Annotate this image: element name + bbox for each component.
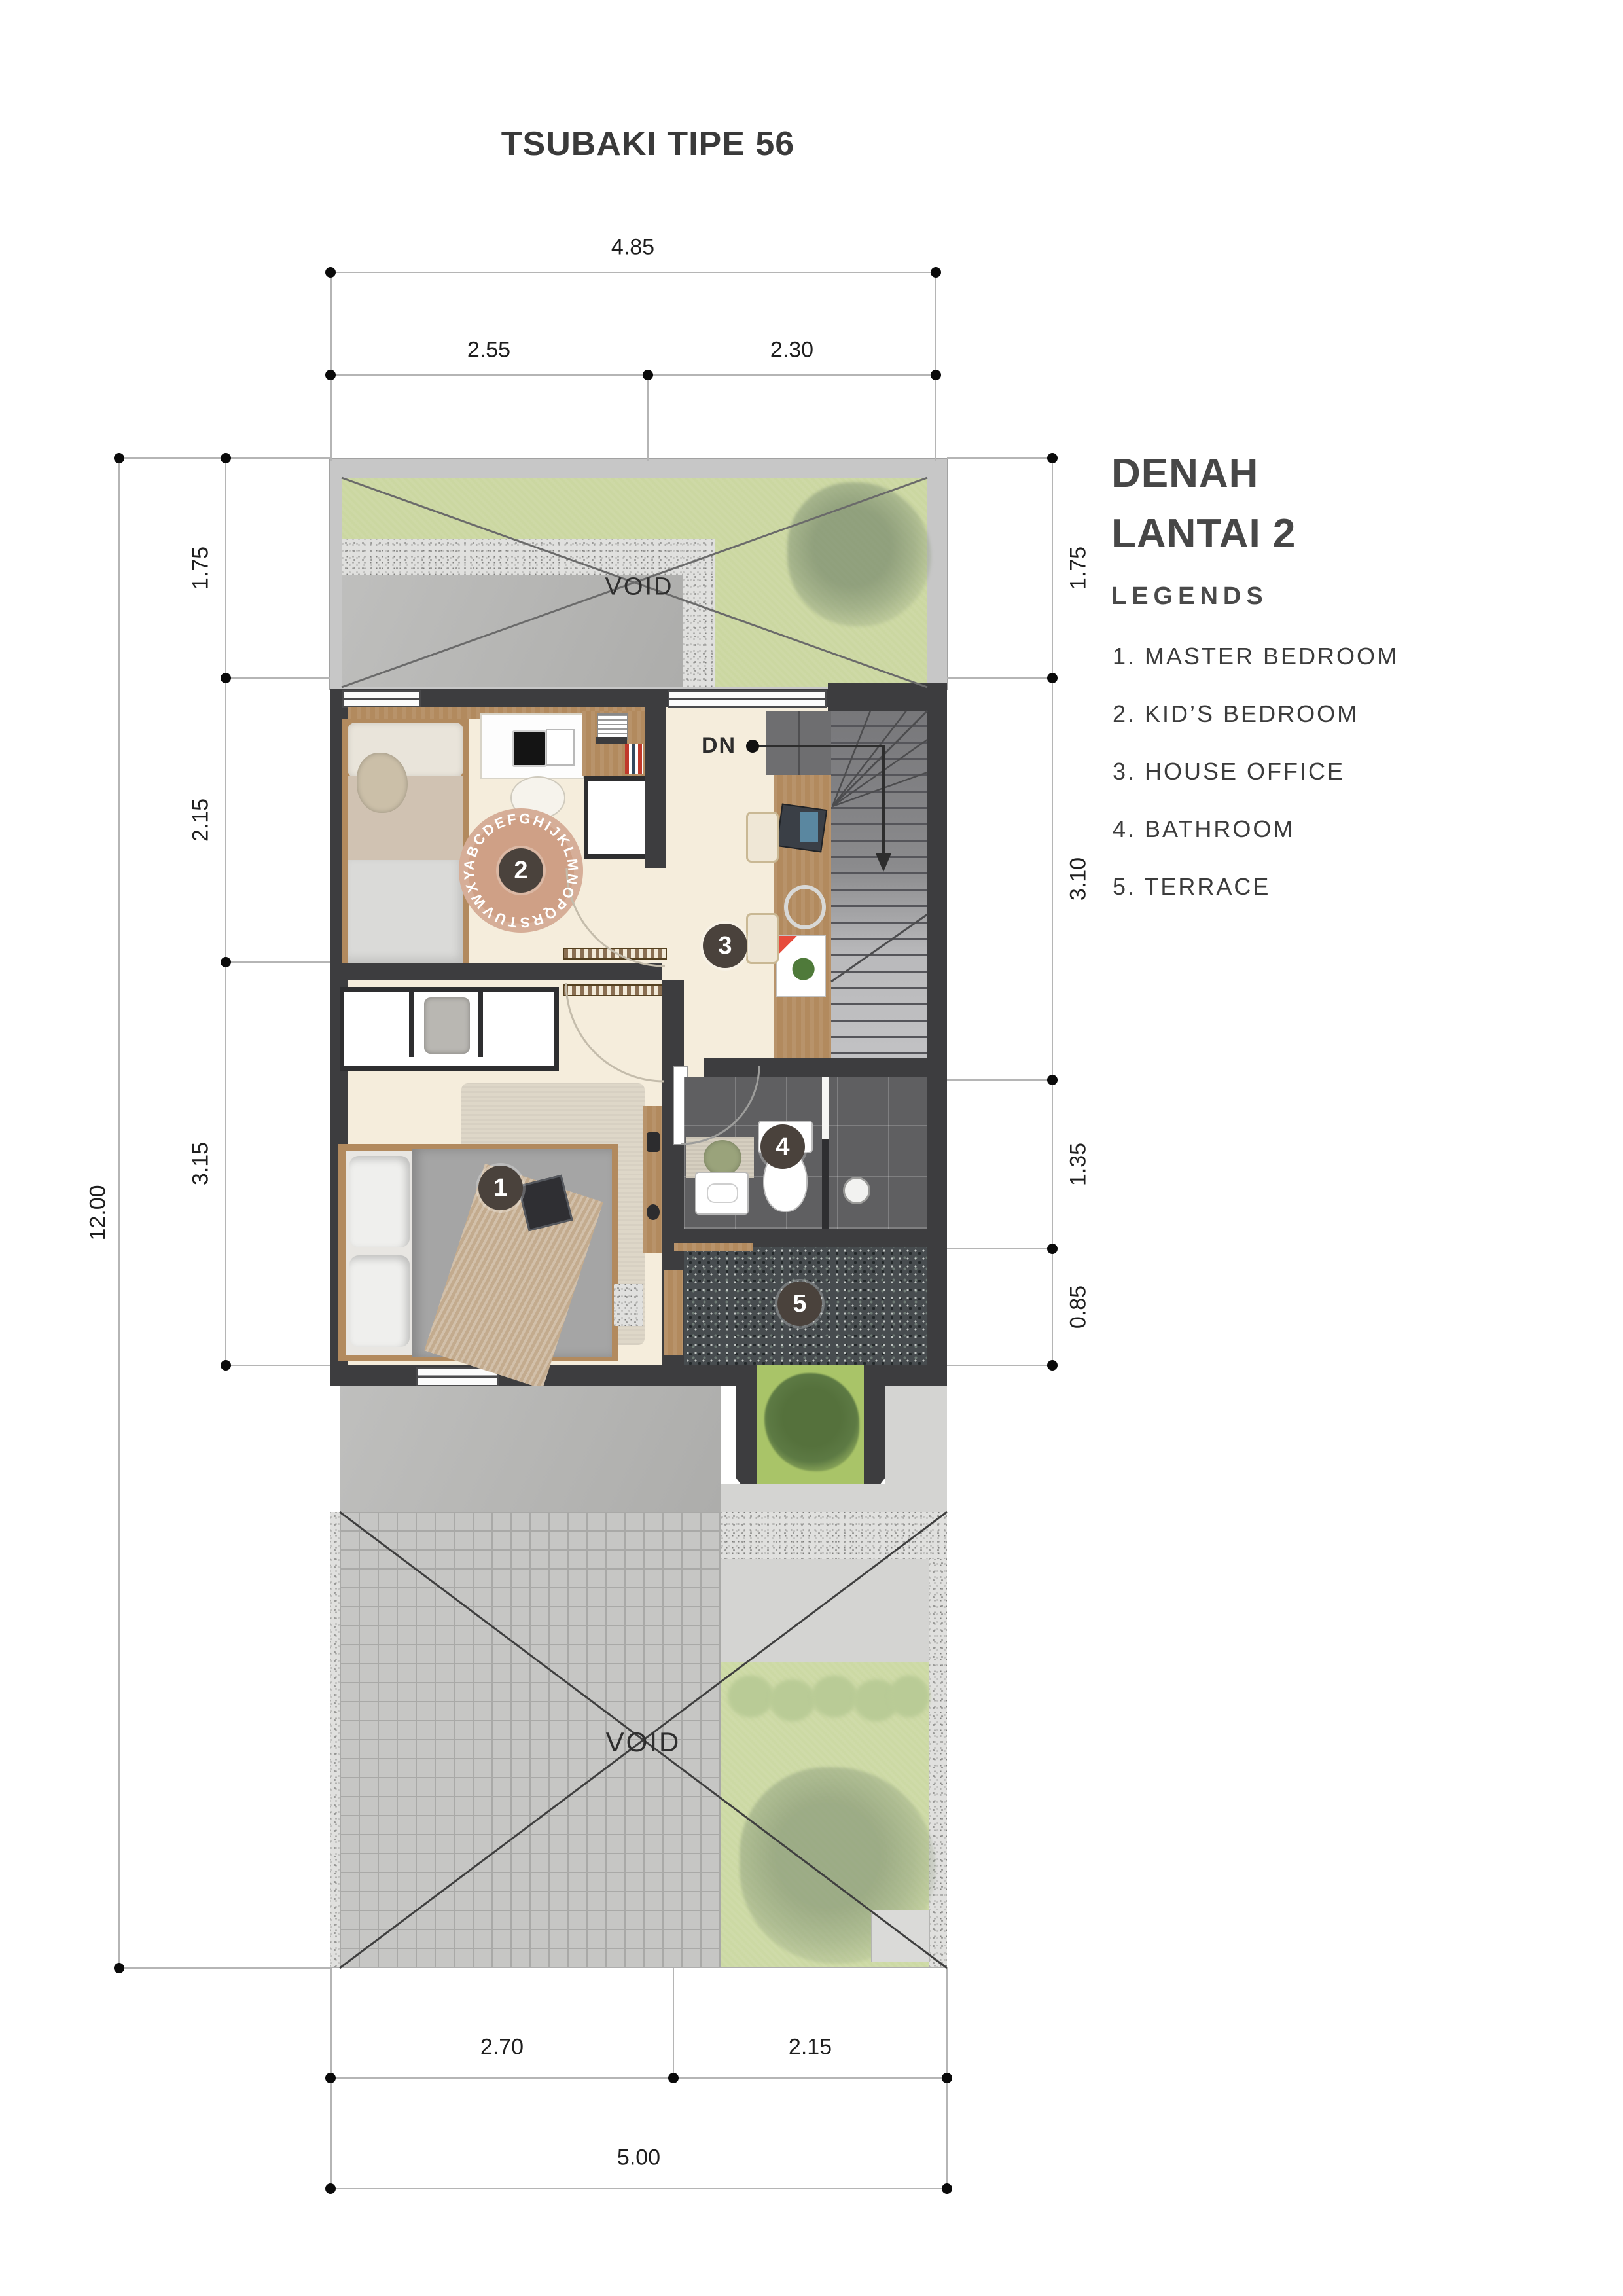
down-arrow-icon <box>876 853 891 872</box>
dn-leader-dot <box>746 740 759 753</box>
room-marker-kids-bedroom: 2 <box>499 848 543 893</box>
linework-overlay: ABCDEFGHIJKLMNOPQRSTUVWXYZ <box>0 0 1623 2296</box>
void-label-bottom: VOID <box>606 1727 681 1758</box>
stairs-dn-label: DN <box>702 733 736 759</box>
room-marker-bathroom: 4 <box>760 1124 805 1169</box>
void-label-top: VOID <box>605 573 674 601</box>
room-marker-house-office: 3 <box>703 924 747 968</box>
svg-text:ABCDEFGHIJKLMNOPQRSTUVWXYZ: ABCDEFGHIJKLMNOPQRSTUVWXYZ <box>0 0 582 931</box>
room-marker-terrace: 5 <box>777 1282 822 1326</box>
floor-plan-sheet: TSUBAKI TIPE 56 DENAH LANTAI 2 LEGENDS 1… <box>0 0 1623 2296</box>
room-marker-master-bedroom: 1 <box>478 1166 523 1210</box>
rug-alphabet-text: ABCDEFGHIJKLMNOPQRSTUVWXYZ <box>0 0 582 931</box>
